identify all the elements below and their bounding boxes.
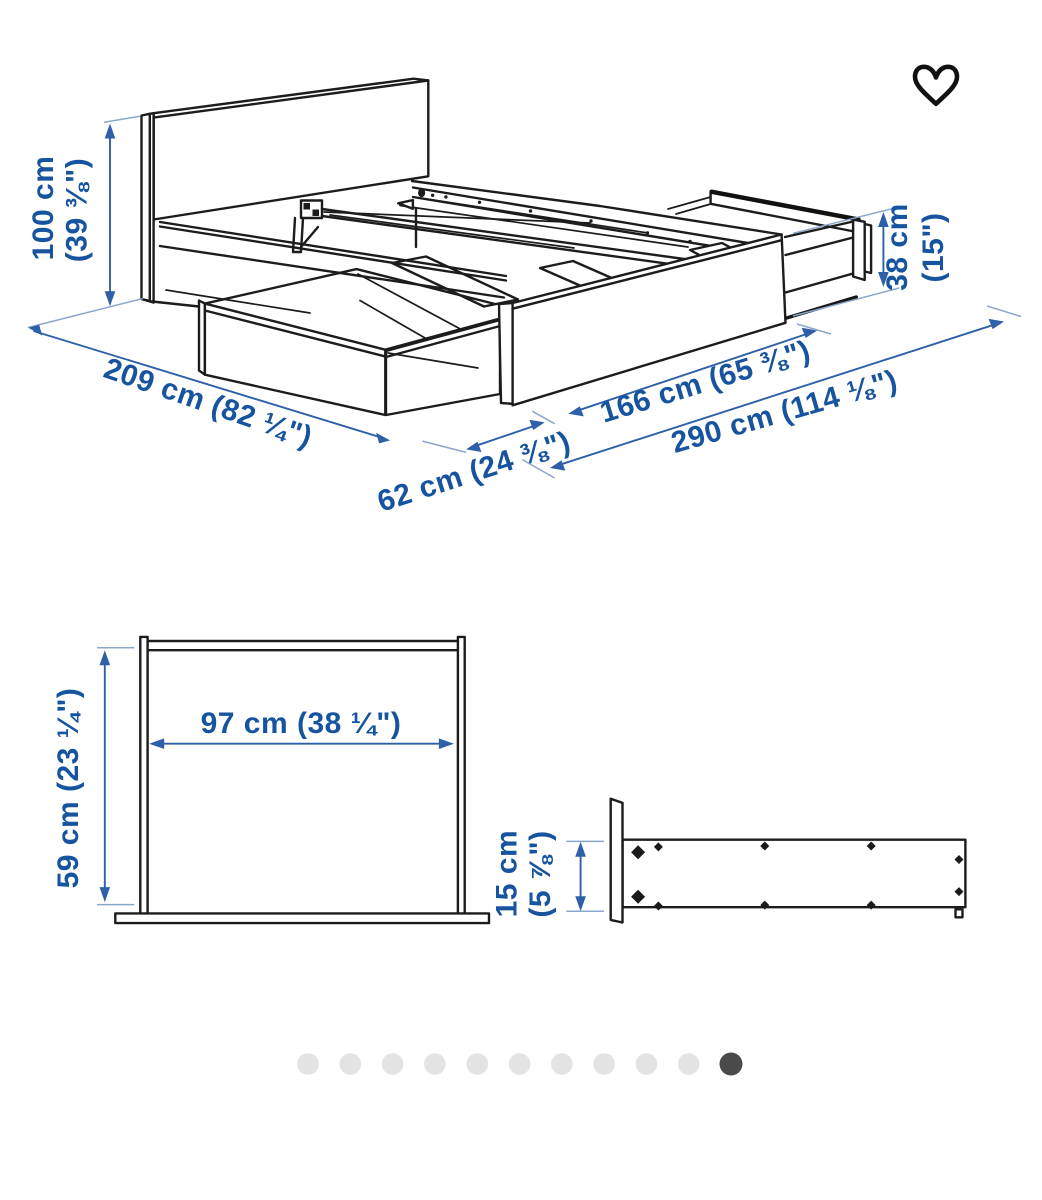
svg-text:15 cm: 15 cm bbox=[491, 830, 524, 918]
svg-text:59 cm (23 ¼"): 59 cm (23 ¼") bbox=[52, 688, 85, 889]
svg-text:100 cm: 100 cm bbox=[27, 156, 60, 261]
svg-text:(5 ⅞"): (5 ⅞") bbox=[524, 830, 557, 917]
svg-text:38 cm: 38 cm bbox=[881, 203, 914, 291]
svg-text:(15"): (15") bbox=[917, 212, 950, 282]
svg-text:(39 ⅜"): (39 ⅜") bbox=[61, 158, 94, 262]
svg-text:97 cm (38 ¼"): 97 cm (38 ¼") bbox=[201, 707, 402, 740]
